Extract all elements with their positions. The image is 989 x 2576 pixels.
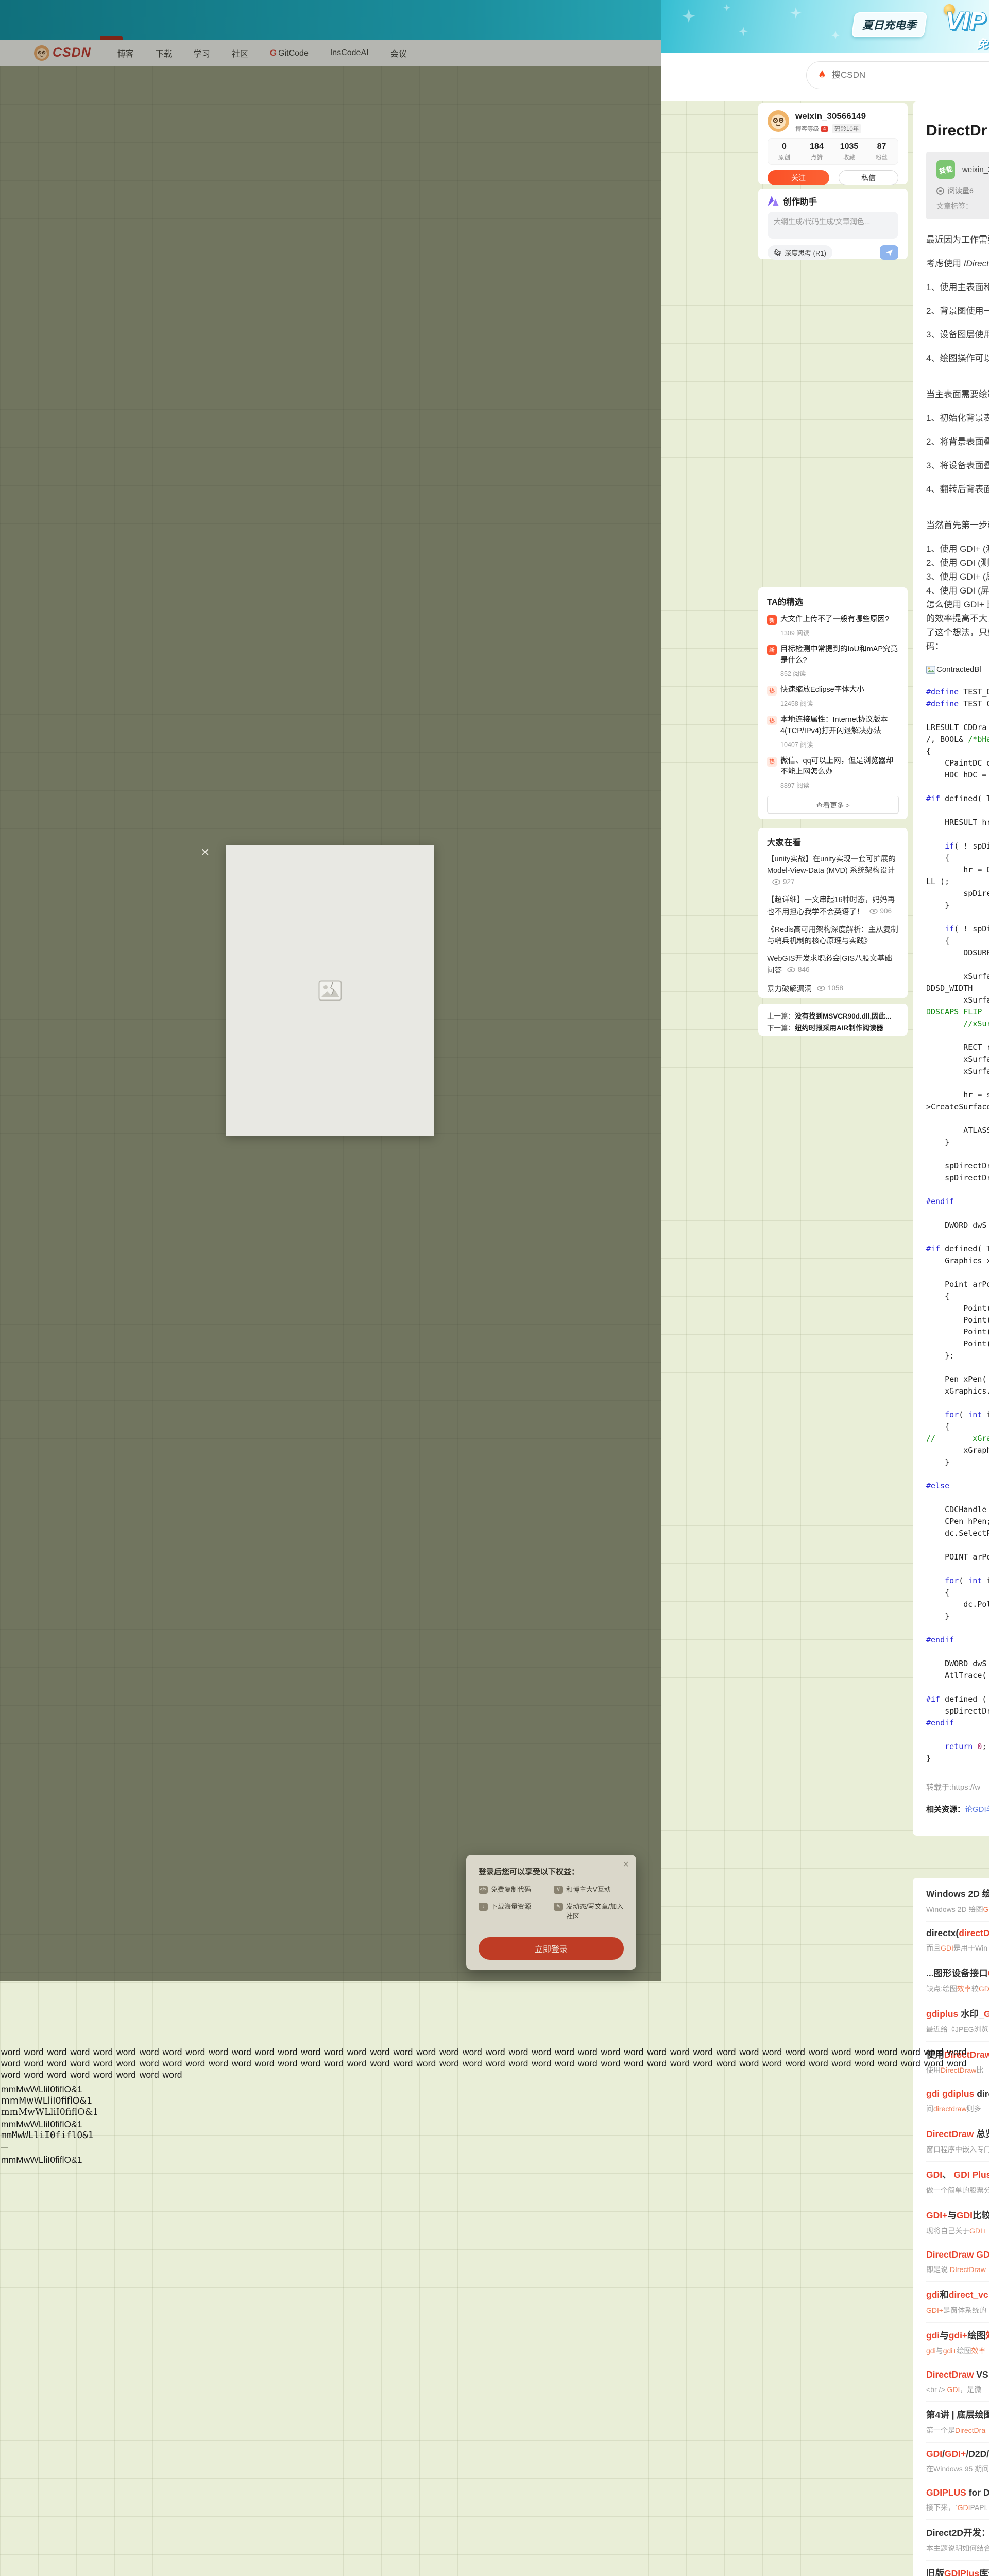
stat-value: 0 bbox=[768, 142, 800, 151]
text-segment: GDI bbox=[926, 2449, 942, 2459]
text-segment: 绘图 bbox=[967, 2330, 985, 2341]
prev-title: 没有找到MSVCR90d.dll,因此... bbox=[795, 1012, 892, 1020]
text-segment: 、 bbox=[942, 2170, 953, 2180]
code-line bbox=[926, 1362, 989, 1374]
text-segment: 3、使用 GDI+ (屏 bbox=[926, 572, 989, 582]
text-segment: HRESULT hr = bbox=[926, 818, 989, 827]
code-line: CPen hPen; h bbox=[926, 1516, 989, 1528]
text-segment: 第一个是 bbox=[926, 2426, 955, 2434]
benefit-text: 免费复制代码 bbox=[491, 1885, 531, 1895]
code-line: return 0; bbox=[926, 1741, 989, 1753]
campaign-text: 夏日充电季 bbox=[862, 17, 916, 32]
code-line: #if defined( TES bbox=[926, 1243, 989, 1255]
text-segment: CDCHandle d bbox=[926, 1505, 989, 1514]
sparkle-icon bbox=[739, 27, 748, 36]
text-segment: spDirectDraw bbox=[926, 1161, 989, 1171]
code-line: POINT arPoin bbox=[926, 1551, 989, 1563]
broken-image-icon bbox=[926, 666, 935, 674]
featured-item-title: 快速缩放Eclipse字体大小 bbox=[780, 685, 864, 696]
text-segment: { bbox=[926, 1588, 949, 1597]
next-label: 下一篇： bbox=[767, 1024, 795, 1032]
assistant-head: 创作助手 bbox=[768, 195, 898, 207]
trending-items: 【unity实战】在unity实现一套可扩展的Model-View-Data (… bbox=[767, 854, 899, 995]
related-item-snippet: 间directdraw则多 bbox=[926, 2104, 989, 2114]
related-item[interactable]: gdi gdiplus dire间directdraw则多 bbox=[926, 2082, 989, 2121]
featured-item[interactable]: 新目标检测中常提到的IoU和mAP究竟是什么?852 阅读 bbox=[767, 644, 899, 679]
code-line: #define TEST_D bbox=[926, 686, 989, 698]
text-segment: TEST_D bbox=[959, 687, 989, 697]
login-now-button[interactable]: 立即登录 bbox=[479, 1937, 624, 1960]
pencil-icon: ✎ bbox=[554, 1903, 563, 1911]
trending-item[interactable]: 【unity实战】在unity实现一套可扩展的Model-View-Data (… bbox=[767, 854, 899, 889]
text-segment: CPaintDC dcP bbox=[926, 758, 989, 768]
code-line bbox=[926, 1563, 989, 1575]
trending-item[interactable]: 暴力破解漏洞1058 bbox=[767, 983, 899, 995]
text-segment: GDI bbox=[941, 1944, 953, 1952]
code-line: DDSURFAC bbox=[926, 947, 989, 959]
trending-item-views: 846 bbox=[787, 964, 810, 975]
related-item[interactable]: Direct2D开发：I本主题说明如何结合 bbox=[926, 2520, 989, 2561]
nav-menu: 博客下载学习社区GGitCodeInsCodeAI会议 bbox=[107, 47, 418, 59]
code-line bbox=[926, 1184, 989, 1196]
nav-item-5[interactable]: InsCodeAI bbox=[330, 48, 369, 58]
code-line: /, BOOL& /*bHa bbox=[926, 734, 989, 745]
featured-item[interactable]: 热微信、qq可以上网，但是浏览器却不能上网怎么办8897 阅读 bbox=[767, 756, 899, 790]
nav-item-3[interactable]: 社区 bbox=[232, 47, 248, 59]
text-segment: ; bbox=[982, 1742, 986, 1751]
font-test-line: mmMwWLliI0fiflO&1 bbox=[1, 2107, 98, 2119]
image-preview-placeholder[interactable] bbox=[226, 845, 434, 1136]
prev-next-card: 上一篇：没有找到MSVCR90d.dll,因此... 下一篇：纽约时报采用AIR… bbox=[758, 1004, 908, 1036]
featured-item-line: 新目标检测中常提到的IoU和mAP究竟是什么? bbox=[767, 644, 899, 667]
text-segment: gdiplus bbox=[926, 2009, 958, 2019]
text-segment: 水印_ bbox=[958, 2009, 984, 2019]
text-segment: ( ! spDirectD bbox=[954, 841, 989, 851]
code-line: xSurfaceD bbox=[926, 971, 989, 982]
article-paragraph: 当然首先第一步就 bbox=[926, 519, 989, 532]
code-line: CDCHandle d bbox=[926, 1504, 989, 1516]
featured-item-line: 热本地连接属性：Internet协议版本4(TCP/IPv4)打开闪退解决办法 bbox=[767, 715, 899, 737]
code-line: Point(150, bbox=[926, 1314, 989, 1326]
featured-item-title: 目标检测中常提到的IoU和mAP究竟是什么? bbox=[780, 644, 899, 667]
featured-item[interactable]: 新大文件上传不了一般有哪些原因?1309 阅读 bbox=[767, 614, 899, 637]
text-segment bbox=[926, 1742, 945, 1751]
featured-item-reads: 1309 阅读 bbox=[780, 628, 899, 637]
article-paragraph: 1、使用 GDI+ (测 bbox=[926, 543, 989, 555]
code-line bbox=[926, 781, 989, 793]
creation-assistant-card: 创作助手 深度思考 (R1) bbox=[758, 189, 908, 259]
blog-level-icon: 4 bbox=[821, 126, 828, 132]
hot-badge: 热 bbox=[767, 757, 777, 767]
sparkle-icon bbox=[790, 7, 802, 19]
related-item-snippet: 窗口程序中嵌入专门 bbox=[926, 2144, 989, 2155]
featured-item-reads: 12458 阅读 bbox=[780, 698, 899, 708]
code-line: LL ); bbox=[926, 876, 989, 888]
trending-card: 大家在看 【unity实战】在unity实现一套可扩展的Model-View-D… bbox=[758, 828, 908, 998]
related-resource-link[interactable]: 论GDI与 bbox=[965, 1805, 989, 1814]
text-segment: 第4讲 | 底层绘图 bbox=[926, 2410, 989, 2420]
text-segment: #if bbox=[926, 1694, 940, 1704]
sparkle-icon bbox=[723, 4, 730, 11]
stat-value: 184 bbox=[800, 142, 833, 151]
code-line bbox=[926, 1148, 989, 1160]
text-segment: xSurfaceD bbox=[926, 1055, 989, 1064]
code-line: #define TEST_C bbox=[926, 698, 989, 710]
code-line: } bbox=[926, 1137, 989, 1148]
deep-think-toggle[interactable]: 深度思考 (R1) bbox=[768, 245, 832, 260]
assistant-prompt-input[interactable] bbox=[768, 212, 898, 239]
text-segment: spDirectDraw bbox=[926, 1173, 989, 1182]
code-line bbox=[926, 828, 989, 840]
text-segment: 4、使用 GDI (屏 bbox=[926, 586, 989, 596]
text-segment: Graphics xGr bbox=[926, 1256, 989, 1265]
related-item-snippet: 缺点:绘图效率较GD bbox=[926, 1984, 989, 1994]
related-item[interactable]: gdi与gdi+绘图效gdi与gdi+绘图效率 bbox=[926, 2323, 989, 2363]
paper-plane-icon bbox=[885, 249, 893, 257]
login-dialog: × 登录后您可以享受以下权益： </>免费复制代码V和博主大V互动↓下载海量资源… bbox=[466, 1855, 636, 1970]
next-article-link[interactable]: 下一篇：纽约时报采用AIR制作阅读器 bbox=[767, 1022, 899, 1032]
related-item-snippet: 最近给《JPEG浏览 bbox=[926, 2024, 989, 2035]
code-line: #endif bbox=[926, 1196, 989, 1208]
meta-row-views: 阅读量6 bbox=[936, 185, 989, 196]
prev-article-link[interactable]: 上一篇：没有找到MSVCR90d.dll,因此... bbox=[767, 1010, 899, 1021]
text-segment: 是窗体系统的 bbox=[943, 2306, 986, 2314]
code-line: Point(10, 1 bbox=[926, 1302, 989, 1314]
text-segment: 2、将背景表面叠 bbox=[926, 437, 989, 447]
code-line: CPaintDC dcP bbox=[926, 757, 989, 769]
text-segment: 考虑使用 bbox=[926, 259, 964, 268]
related-item-title: DirectDraw VS bbox=[926, 2369, 989, 2380]
text-segment: Windows 2D 绘图 bbox=[926, 1889, 989, 1899]
text-segment: <br /> bbox=[926, 2385, 947, 2394]
related-item-title: GDI+与GDI比较 bbox=[926, 2209, 989, 2222]
related-item[interactable]: GDI/GDI+/D2D/在Windows 95 期间 bbox=[926, 2443, 989, 2481]
text-segment: 1、初始化背景表 bbox=[926, 413, 989, 423]
text-segment bbox=[926, 1576, 945, 1585]
text-segment: DDSCAPS_FLIP bbox=[926, 1007, 982, 1016]
text-segment: GDI bbox=[926, 2170, 942, 2180]
code-line bbox=[926, 1030, 989, 1042]
text-segment: 和 bbox=[940, 2290, 949, 2300]
text-segment: G bbox=[983, 1905, 988, 1913]
text-segment: Point( bbox=[926, 1315, 989, 1325]
author-avatar[interactable] bbox=[768, 110, 789, 132]
search-input[interactable] bbox=[831, 70, 944, 81]
text-segment: GDI+ bbox=[926, 2306, 943, 2314]
text-segment: gdi bbox=[926, 2347, 936, 2355]
code-line: AtlTrace( TEX bbox=[926, 1670, 989, 1682]
text-segment: gdi bbox=[926, 2330, 940, 2341]
prev-label: 上一篇： bbox=[767, 1012, 795, 1020]
featured-item-title: 本地连接属性：Internet协议版本4(TCP/IPv4)打开闪退解决办法 bbox=[780, 715, 899, 737]
code-line: Point(200, bbox=[926, 1326, 989, 1338]
text-segment: 现将自己关于 bbox=[926, 2227, 969, 2235]
assistant-ai-icon bbox=[768, 196, 779, 206]
related-item-snippet: 接下来，`GDIPAPI. bbox=[926, 2502, 989, 2513]
image-viewer-close-icon[interactable]: × bbox=[201, 845, 209, 859]
text-segment: directDr bbox=[959, 1928, 989, 1938]
related-item[interactable]: GDIPLUS for De接下来，`GDIPAPI. bbox=[926, 2481, 989, 2520]
font-test-lines: mmMwWLliI0fiflO&1mmMwWLliI0fiflO&1mmMwWL… bbox=[1, 2083, 98, 2165]
login-benefit: V和博主大V互动 bbox=[554, 1885, 627, 1895]
nav-item-1[interactable]: 下载 bbox=[156, 47, 172, 59]
code-line: HRESULT hr = bbox=[926, 817, 989, 828]
featured-item-line: 热快速缩放Eclipse字体大小 bbox=[767, 685, 899, 696]
text-segment: directdraw bbox=[933, 2105, 967, 2113]
featured-item[interactable]: 热本地连接属性：Internet协议版本4(TCP/IPv4)打开闪退解决办法1… bbox=[767, 715, 899, 749]
related-item-title: GDIPLUS for De bbox=[926, 2487, 989, 2498]
text-segment: RECT rcCli bbox=[926, 1043, 989, 1052]
code-icon: </> bbox=[479, 1886, 488, 1894]
promo-banner-dimmed[interactable] bbox=[0, 0, 661, 40]
stat-value: 87 bbox=[865, 142, 898, 151]
text-segment: spDirectDr bbox=[926, 889, 989, 898]
text-segment: VS bbox=[974, 2369, 988, 2380]
stat-value: 1035 bbox=[833, 142, 865, 151]
related-item[interactable]: gdiplus 水印_GD最近给《JPEG浏览 bbox=[926, 2001, 989, 2042]
views-count: 846 bbox=[798, 964, 810, 975]
flame-icon bbox=[818, 70, 826, 80]
code-line: hr = Direc bbox=[926, 864, 989, 876]
code-line: #if defined ( TE bbox=[926, 1693, 989, 1705]
author-head-text: weixin_30566149 博客等级 4 码龄10年 bbox=[789, 110, 866, 133]
article-paragraph: 码： bbox=[926, 640, 989, 653]
related-item-title: directx(directDr bbox=[926, 1928, 989, 1939]
code-line: xSurfaceD bbox=[926, 1054, 989, 1065]
assistant-title: 创作助手 bbox=[783, 195, 817, 207]
text-segment: Windows 2D 绘图 bbox=[926, 1905, 983, 1913]
text-segment: int bbox=[968, 1410, 982, 1419]
code-line: spDirectDraw bbox=[926, 1172, 989, 1184]
related-item[interactable]: DirectDraw 总览窗口程序中嵌入专门 bbox=[926, 2121, 989, 2162]
author-stat-0[interactable]: 0原创 bbox=[768, 142, 800, 161]
text-segment: DDSD_WIDTH bbox=[926, 984, 973, 993]
active-tab-indicator bbox=[100, 36, 123, 40]
related-item[interactable]: directx(directDr而且GDI是用于Win bbox=[926, 1922, 989, 1960]
login-benefit: </>免费复制代码 bbox=[479, 1885, 551, 1895]
author-stat-1[interactable]: 184点赞 bbox=[800, 142, 833, 161]
text-segment: defined ( TE bbox=[940, 1694, 989, 1704]
code-line: { bbox=[926, 852, 989, 864]
related-resources-label: 相关资源： bbox=[926, 1805, 965, 1814]
text-segment: 做一个简单的股票分 bbox=[926, 2186, 989, 2194]
text-segment: 总览 bbox=[974, 2129, 989, 2139]
code-line: #endif bbox=[926, 1634, 989, 1646]
author-stats: 0原创184点赞1035收藏87粉丝 bbox=[768, 138, 898, 165]
article-paragraph: 4、绘图操作可以 bbox=[926, 352, 989, 365]
text-segment: gdi gdiplus bbox=[926, 2089, 974, 2099]
text-segment: gdi bbox=[926, 2290, 940, 2300]
nav-item-2[interactable]: 学习 bbox=[194, 47, 210, 59]
code-line: if( ! spDirectD bbox=[926, 923, 989, 935]
article-footer-author[interactable]: weixin_30 bbox=[926, 1829, 989, 1836]
code-line: LRESULT CDDra bbox=[926, 722, 989, 734]
trending-item[interactable]: 【超详细】一文串起16种时态，妈妈再也不用担心我学不会英语了！906 bbox=[767, 895, 899, 919]
vip-promo-text: VIP bbox=[946, 7, 985, 36]
code-line bbox=[926, 1267, 989, 1279]
next-title: 纽约时报采用AIR制作阅读器 bbox=[795, 1024, 883, 1032]
text-segment: for bbox=[945, 1576, 959, 1585]
text-segment: /D2D/ bbox=[966, 2449, 989, 2459]
related-item[interactable]: gdi和direct_vc gGDI+是窗体系统的 bbox=[926, 2282, 989, 2323]
text-segment: 与 bbox=[936, 2347, 943, 2355]
eye-icon bbox=[869, 908, 878, 914]
code-line: Point arPoint bbox=[926, 1279, 989, 1291]
text-segment: xGraphics bbox=[926, 1446, 989, 1455]
related-item-snippet: <br /> GDI，是微 bbox=[926, 2384, 989, 2395]
text-segment: 码： bbox=[926, 641, 944, 651]
related-item[interactable]: 旧版GDIPlus库适6. GDIPAPI.pas和G bbox=[926, 2561, 989, 2576]
dialog-title: 登录后您可以享受以下权益： bbox=[479, 1866, 624, 1877]
related-item[interactable]: DirectDraw GDI即是说 DIrectDraw bbox=[926, 2243, 989, 2282]
related-item-snippet: 即是说 DIrectDraw bbox=[926, 2264, 989, 2275]
text-segment: direct_vc bbox=[949, 2290, 988, 2300]
article-paragraph: 考虑使用 IDirect bbox=[926, 258, 989, 270]
views-count: 906 bbox=[880, 906, 892, 917]
author-stat-3[interactable]: 87粉丝 bbox=[865, 142, 898, 161]
code-line bbox=[926, 1682, 989, 1693]
code-line: dc.SelectPen bbox=[926, 1528, 989, 1539]
gitcode-icon: G bbox=[270, 48, 277, 58]
code-line: Graphics xGr bbox=[926, 1255, 989, 1267]
nav-item-4[interactable]: GGitCode bbox=[270, 48, 309, 58]
text-segment: 效 bbox=[985, 2330, 989, 2341]
text-segment: DirectDraw bbox=[926, 2129, 974, 2139]
text-segment: gdi+ bbox=[949, 2330, 967, 2341]
view-more-button[interactable]: 查看更多 > bbox=[767, 796, 899, 814]
text-segment: defined( TES bbox=[940, 1244, 989, 1253]
eye-icon bbox=[772, 879, 780, 885]
code-line: { bbox=[926, 1587, 989, 1599]
text-segment: ，是微 bbox=[960, 2385, 981, 2394]
text-segment: #endif bbox=[926, 1635, 954, 1645]
nav-item-0[interactable]: 博客 bbox=[117, 47, 134, 59]
related-item[interactable]: 第4讲 | 底层绘图第一个是DirectDra bbox=[926, 2402, 989, 2443]
text-segment: 接下来，` bbox=[926, 2503, 958, 2512]
trending-item[interactable]: WebGIS开发求职必会|GIS八股文基础问答846 bbox=[767, 954, 899, 977]
code-line: } bbox=[926, 1753, 989, 1763]
trending-item[interactable]: 《Redis高可用架构深度解析：主从复制与哨兵机制的核心原理与实践》 bbox=[767, 925, 899, 947]
dialog-close-icon[interactable]: × bbox=[623, 1859, 629, 1871]
text-segment: 效率 bbox=[971, 2347, 986, 2355]
broken-image-icon bbox=[318, 980, 342, 1001]
related-item-snippet: gdi与gdi+绘图效率 bbox=[926, 2346, 989, 2356]
author-stat-2[interactable]: 1035收藏 bbox=[833, 142, 865, 161]
text-segment: DIrectDraw bbox=[950, 2265, 986, 2274]
text-segment: 是用于Win bbox=[953, 1944, 987, 1952]
text-segment: 最近因为工作需要 bbox=[926, 235, 989, 245]
text-segment: #endif bbox=[926, 1197, 954, 1206]
text-segment: #endif bbox=[926, 1718, 954, 1727]
text-segment bbox=[926, 924, 945, 934]
article-paragraph: 3、设备图层使用 bbox=[926, 329, 989, 341]
article-author-link[interactable]: weixin_305 bbox=[962, 165, 989, 174]
top-navbar: CSDN 博客下载学习社区GGitCodeInsCodeAI会议 bbox=[0, 40, 661, 66]
text-segment: 即是说 bbox=[926, 2265, 950, 2274]
text-segment: DirectDra bbox=[955, 2426, 985, 2434]
text-segment: 的效率提高不大， bbox=[926, 614, 989, 623]
code-line: //xSurface bbox=[926, 1018, 989, 1030]
promo-banner[interactable]: 夏日充电季 VIP 免 bbox=[661, 0, 989, 53]
nav-item-6[interactable]: 会议 bbox=[390, 47, 407, 59]
text-segment: GDI bbox=[947, 2385, 960, 2394]
related-item-title: gdiplus 水印_GD bbox=[926, 2007, 989, 2020]
text-segment: Point arPoint bbox=[926, 1280, 989, 1289]
csdn-logo[interactable]: CSDN bbox=[34, 45, 91, 61]
related-item-snippet: 而且GDI是用于Win bbox=[926, 1943, 989, 1953]
hot-badge: 热 bbox=[767, 716, 777, 725]
text-segment: defined( TES bbox=[940, 794, 989, 803]
text-segment: //xSurface bbox=[926, 1019, 989, 1028]
related-item[interactable]: DirectDraw VS<br /> GDI，是微 bbox=[926, 2363, 989, 2402]
text-segment bbox=[973, 1742, 977, 1751]
article-paragraph: 的效率提高不大， bbox=[926, 613, 989, 625]
code-line bbox=[926, 959, 989, 971]
text-segment: 效率 bbox=[957, 1985, 971, 1993]
text-segment: LRESULT CDDra bbox=[926, 723, 986, 732]
text-segment: GD bbox=[979, 1985, 989, 1993]
text-segment: 较 bbox=[971, 1985, 979, 1993]
text-segment: gdi+ bbox=[943, 2347, 957, 2355]
text-segment: DDSURFAC bbox=[926, 948, 989, 957]
text-segment: int bbox=[968, 1576, 982, 1585]
related-item[interactable]: GDI、 GDI Plus、做一个简单的股票分 bbox=[926, 2162, 989, 2202]
text-segment: TEST_C bbox=[959, 699, 989, 708]
text-segment: CPen hPen; h bbox=[926, 1517, 989, 1526]
vip-promo-subtext: 免 bbox=[977, 35, 988, 52]
featured-item[interactable]: 热快速缩放Eclipse字体大小12458 阅读 bbox=[767, 685, 899, 708]
text-segment: #define bbox=[926, 687, 959, 697]
text-segment: Point( bbox=[926, 1303, 989, 1313]
text-segment: i = 0 bbox=[982, 1576, 989, 1585]
text-segment: GDI Plus bbox=[954, 2170, 989, 2180]
code-line: DDSCAPS_FLIP bbox=[926, 1006, 989, 1018]
search-box[interactable] bbox=[806, 61, 989, 89]
code-line: }; bbox=[926, 1350, 989, 1362]
code-line: { bbox=[926, 745, 989, 757]
related-item-snippet: 做一个简单的股票分 bbox=[926, 2185, 989, 2195]
related-item-title: Windows 2D 绘图 bbox=[926, 1887, 989, 1900]
featured-items: 新大文件上传不了一般有哪些原因?1309 阅读新目标检测中常提到的IoU和mAP… bbox=[767, 614, 899, 790]
related-item[interactable]: GDI+与GDI比较现将自己关于GDI+ bbox=[926, 2202, 989, 2243]
send-button[interactable] bbox=[880, 245, 898, 260]
featured-item-reads: 10407 阅读 bbox=[780, 739, 899, 749]
code-line bbox=[926, 1077, 989, 1089]
related-item[interactable]: Windows 2D 绘图Windows 2D 绘图G bbox=[926, 1881, 989, 1922]
related-item[interactable]: ...图形设备接口G缺点:绘图效率较GD bbox=[926, 1960, 989, 2001]
text-segment: >CreateSurface bbox=[926, 1102, 989, 1111]
text-segment: i = 0 bbox=[982, 1410, 989, 1419]
text-segment: xGraphics.Se bbox=[926, 1386, 989, 1396]
article-title: DirectDr bbox=[926, 122, 989, 140]
trending-card-title: 大家在看 bbox=[767, 836, 899, 848]
text-segment: GD bbox=[984, 2009, 989, 2019]
message-button[interactable]: 私信 bbox=[839, 170, 898, 185]
blog-level-label: 博客等级 bbox=[795, 125, 819, 133]
text-segment: { bbox=[926, 1292, 949, 1301]
text-segment: return bbox=[945, 1742, 973, 1751]
code-age-badge: 码龄10年 bbox=[832, 124, 861, 133]
text-segment: IDirect bbox=[964, 259, 989, 268]
glyph-test-words: word word word word word word word word … bbox=[1, 2046, 988, 2080]
author-name[interactable]: weixin_30566149 bbox=[795, 111, 866, 122]
text-segment: 1、使用主表面和 bbox=[926, 282, 989, 292]
text-segment: GDI+ bbox=[969, 2227, 986, 2235]
follow-button[interactable]: 关注 bbox=[768, 170, 829, 185]
text-segment: /*bHa bbox=[968, 735, 989, 744]
article-paragraph: 1、初始化背景表 bbox=[926, 412, 989, 425]
text-segment: } bbox=[926, 1138, 949, 1147]
